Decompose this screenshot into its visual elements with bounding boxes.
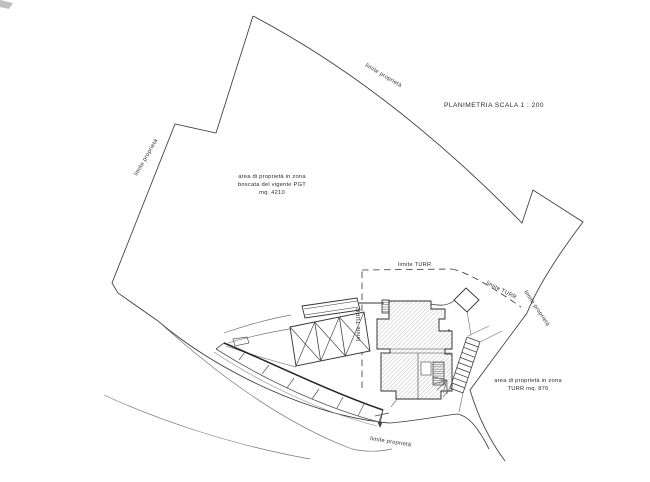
area-turr-line2: TURR mq. 876 — [507, 386, 548, 392]
limite-turr-diagonal-label: limite TURR — [485, 280, 517, 300]
limite-turr-horizontal-label: limite TURR — [398, 262, 431, 268]
annex-connector — [431, 300, 455, 305]
area-boscata-line3: mq. 4210 — [259, 190, 285, 196]
limite-proprieta-top-label: limite proprietà — [364, 63, 403, 90]
drawing-labels: PLANIMETRIA SCALA 1 : 200 area di propri… — [134, 63, 563, 449]
pergola-structure — [290, 298, 384, 366]
property-boundary — [112, 16, 583, 461]
interior-room — [421, 362, 431, 375]
main-building — [377, 300, 452, 399]
limite-turr-vertical-label: limite TURR — [356, 308, 362, 341]
scan-artifact — [0, 0, 13, 9]
area-boscata-line1: area di proprietà in zona — [238, 174, 306, 180]
area-turr-line1: area di proprietà in zona — [494, 378, 562, 384]
plan-title: PLANIMETRIA SCALA 1 : 200 — [444, 102, 544, 109]
area-boscata-line2: boscata del vigente PGT — [238, 182, 306, 188]
external-stair — [450, 337, 480, 393]
small-stair-block — [382, 300, 389, 313]
survey-point — [448, 329, 450, 331]
diamond-annex — [454, 288, 479, 312]
limite-proprieta-left-label: limite proprietà — [134, 138, 160, 177]
site-plan-sheet: PLANIMETRIA SCALA 1 : 200 area di propri… — [0, 0, 650, 482]
limite-proprieta-bottom-label: limite proprietà — [370, 436, 412, 449]
limite-proprieta-right-label: limite proprietà — [522, 290, 551, 328]
site-plan-drawing: PLANIMETRIA SCALA 1 : 200 area di propri… — [0, 0, 650, 482]
